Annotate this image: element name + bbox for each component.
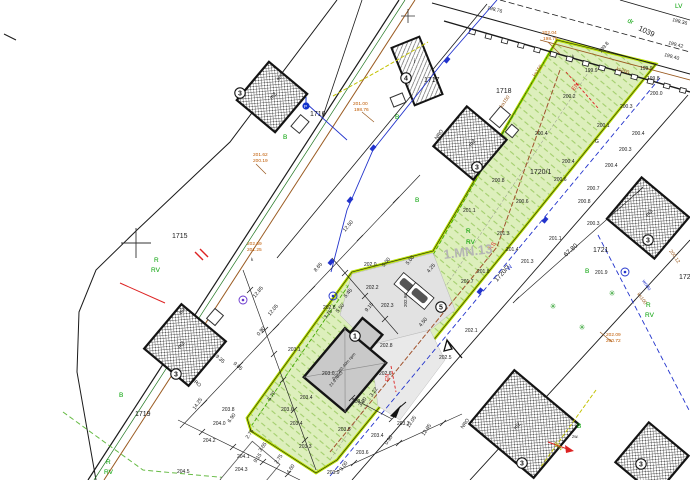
- map-label: 201.1: [463, 208, 476, 214]
- leader: [362, 112, 374, 122]
- site-plan-svg: 333433315✳✳✳ 198.76198.36199.42199.40199…: [0, 0, 690, 480]
- fence-tooth: [582, 61, 589, 67]
- map-label: dr: [626, 17, 635, 26]
- map-label: B: [395, 114, 399, 121]
- dimension-tick: [199, 429, 205, 435]
- map-label: 12.05: [406, 415, 418, 429]
- map-label: 201.00: [353, 101, 368, 107]
- fence-tooth: [501, 38, 508, 44]
- map-label: 202.0: [364, 262, 377, 268]
- building-outline-bottom: [220, 441, 280, 480]
- map-label: 202.2: [366, 285, 379, 291]
- map-label: 203.6: [356, 450, 369, 456]
- parcel-label-1716: 1716: [310, 111, 326, 118]
- map-label: 199.40: [663, 52, 680, 62]
- map-label: 200.3: [620, 104, 633, 110]
- survey-cross: [401, 9, 415, 23]
- map-label: 6.90: [227, 412, 238, 424]
- map-label: 198.76: [543, 36, 558, 42]
- parcel-label-1721: 1721: [593, 247, 609, 254]
- map-label: 200.4: [535, 131, 548, 137]
- well-icon-dot: [624, 271, 627, 274]
- map-label: B: [283, 134, 287, 141]
- outbuilding: [291, 115, 309, 134]
- map-label: 200.2: [563, 94, 576, 100]
- map-label: 199.9: [640, 66, 653, 72]
- map-label: 203.5: [338, 427, 351, 433]
- map-label: R: [466, 228, 471, 235]
- parcel-label-1720-1: 1720/1: [530, 169, 552, 176]
- map-label: R: [154, 257, 159, 264]
- map-label: 200.3: [619, 147, 632, 153]
- map-label: R: [646, 302, 651, 309]
- map-label: 200.1: [597, 123, 610, 129]
- map-label: 200.6: [516, 199, 529, 205]
- parcel-label-1719: 1719: [135, 411, 151, 418]
- fence-tooth: [485, 34, 492, 40]
- building-number: 3: [475, 165, 479, 172]
- map-label: 204.2: [203, 438, 216, 444]
- site-plan-canvas: 333433315✳✳✳ 198.76198.36199.42199.40199…: [0, 0, 690, 480]
- map-label: 202.8: [380, 343, 393, 349]
- building-corner: [615, 422, 688, 480]
- map-label: 200.4: [562, 159, 575, 165]
- red-tick: [200, 249, 208, 257]
- building-number: 3: [639, 462, 643, 469]
- map-label: 203.9: [327, 470, 340, 476]
- map-label: 203.1: [288, 347, 301, 353]
- dimension-tick: [393, 197, 399, 203]
- map-label: 200.3: [587, 221, 600, 227]
- valve-icon: [477, 287, 484, 294]
- dimension-tick: [271, 351, 277, 357]
- map-label: 202.69: [247, 241, 262, 247]
- map-label: 67.80: [563, 242, 580, 258]
- parcel-label-1039: 1039: [637, 24, 656, 39]
- fence-tooth: [517, 43, 524, 49]
- map-label: 199.9: [585, 68, 598, 74]
- map-label: 203.3: [299, 444, 312, 450]
- fence-tooth: [679, 88, 686, 94]
- map-label: 200.19: [253, 158, 268, 164]
- map-label: 201.3: [497, 231, 510, 237]
- fence-tooth: [550, 52, 557, 58]
- map-label: 202.5: [439, 355, 452, 361]
- map-label: 202.04: [542, 30, 557, 36]
- map-label: wodo: [640, 279, 652, 292]
- dimension-tick: [351, 460, 357, 466]
- red-arrow-head: [565, 445, 574, 453]
- map-label: 201.7: [461, 279, 474, 285]
- map-label: 198.76: [486, 5, 503, 15]
- map-label: 3.65: [258, 441, 269, 453]
- map-label: EN: [385, 374, 391, 381]
- map-label: LV: [675, 3, 683, 10]
- map-label: 203.6: [281, 407, 294, 413]
- fence-tooth: [534, 47, 541, 53]
- map-label: 201.4: [506, 247, 519, 253]
- map-label: 200.0: [650, 91, 663, 97]
- tree-icon: ✳: [579, 323, 586, 332]
- road-dashed-edge: [500, 0, 690, 52]
- dimension-tick: [309, 286, 315, 292]
- map-label: 203.4: [290, 421, 303, 427]
- dimension-tick: [396, 440, 402, 446]
- fence-tooth: [469, 29, 476, 35]
- map-label: 0.90: [256, 326, 267, 338]
- parcel-label-1720-7: 1720/7: [493, 264, 512, 284]
- map-label: 202.1: [465, 328, 478, 334]
- fence-tooth: [631, 74, 638, 80]
- parcel-label-1717: 1717: [424, 77, 440, 84]
- dimension-tick: [357, 235, 363, 241]
- red-connection: [120, 283, 165, 303]
- map-label: 204.1: [237, 454, 250, 460]
- map-label: RV: [151, 267, 161, 274]
- building-number: 3: [238, 91, 242, 98]
- map-label: 204.5: [177, 469, 190, 475]
- survey-cross: [121, 228, 151, 258]
- valve-icon: [542, 216, 549, 223]
- map-label: R: [106, 459, 111, 466]
- map-label: 200.4: [605, 163, 618, 169]
- well-icon-dot: [242, 299, 245, 302]
- leader: [256, 164, 266, 174]
- dimension-tick: [513, 297, 519, 303]
- map-label: i: [414, 59, 415, 65]
- map-label: 203.4: [300, 395, 313, 401]
- map-label: 201.3: [521, 259, 534, 265]
- map-label: 201.25: [247, 247, 262, 253]
- valve-icon: [444, 56, 451, 63]
- map-label: B: [577, 423, 581, 430]
- building-number: 3: [174, 372, 178, 379]
- map-label: 199.8: [647, 76, 660, 82]
- edge-mark: [4, 34, 16, 40]
- parcel-label-172: 172: [679, 274, 690, 281]
- tree-icon: ✳: [609, 289, 616, 298]
- hydrant-spur: [307, 104, 347, 140]
- dimension-tick: [273, 324, 279, 330]
- map-label: 204.0: [213, 421, 226, 427]
- map-label: RV: [104, 469, 114, 476]
- map-label: 202.3: [381, 303, 394, 309]
- map-label: 2.75: [274, 453, 285, 465]
- dimension-tick: [247, 287, 253, 293]
- parcel-label-1718: 1718: [496, 88, 512, 95]
- map-label: 8.65: [313, 262, 324, 274]
- map-label: 200.6: [554, 177, 567, 183]
- map-label: ka150: [499, 94, 512, 109]
- building-number: 1: [353, 334, 357, 341]
- map-label: 203.8: [222, 407, 235, 413]
- map-label: 0.90: [384, 434, 395, 446]
- map-label: zw.: [572, 434, 579, 439]
- fence-tooth: [598, 65, 605, 71]
- map-label: RV: [645, 312, 655, 319]
- map-label: B: [119, 392, 123, 399]
- map-label: NRO: [190, 377, 202, 389]
- map-label: 12.95: [421, 423, 433, 437]
- red-tick: [195, 252, 203, 260]
- dimension-tick: [440, 420, 446, 426]
- map-label: 202.09: [606, 332, 621, 338]
- map-label: 200.72: [606, 338, 621, 344]
- building-number: 3: [520, 461, 524, 468]
- map-label: 198.76: [354, 107, 369, 113]
- map-label: P: [304, 104, 307, 109]
- map-label: 200.7: [587, 186, 600, 192]
- map-label: 200.8: [492, 178, 505, 184]
- map-label: 12.85: [252, 285, 265, 299]
- map-label: 202.96: [403, 293, 408, 307]
- fence-tooth: [663, 83, 670, 89]
- building-number: 4: [404, 76, 408, 83]
- dimension-tick: [230, 444, 236, 450]
- map-label: 201.9: [595, 270, 608, 276]
- outbuilding: [207, 308, 224, 325]
- map-label: G: [595, 139, 599, 145]
- building-number: 3: [646, 238, 650, 245]
- tree-icon: ✳: [550, 302, 557, 311]
- map-label: 204.3: [235, 467, 248, 473]
- building-number: 5: [439, 305, 443, 312]
- map-label: 4.60: [286, 463, 297, 475]
- map-label: 19.35: [212, 352, 226, 365]
- map-label: B: [585, 268, 589, 275]
- map-label: 200.8: [578, 199, 591, 205]
- map-label: k: [251, 257, 254, 262]
- valve-icon: [370, 144, 377, 151]
- parcel-label-1715: 1715: [172, 233, 188, 240]
- map-label: 201.62: [253, 152, 268, 158]
- map-label: 200.4: [632, 131, 645, 137]
- map-label: 201.1: [549, 236, 562, 242]
- well-icon-dot: [332, 295, 335, 298]
- map-label: 203.4: [371, 433, 384, 439]
- map-label: 201.8: [477, 269, 490, 275]
- map-label: B: [415, 197, 419, 204]
- map-label: 12.05: [267, 303, 280, 317]
